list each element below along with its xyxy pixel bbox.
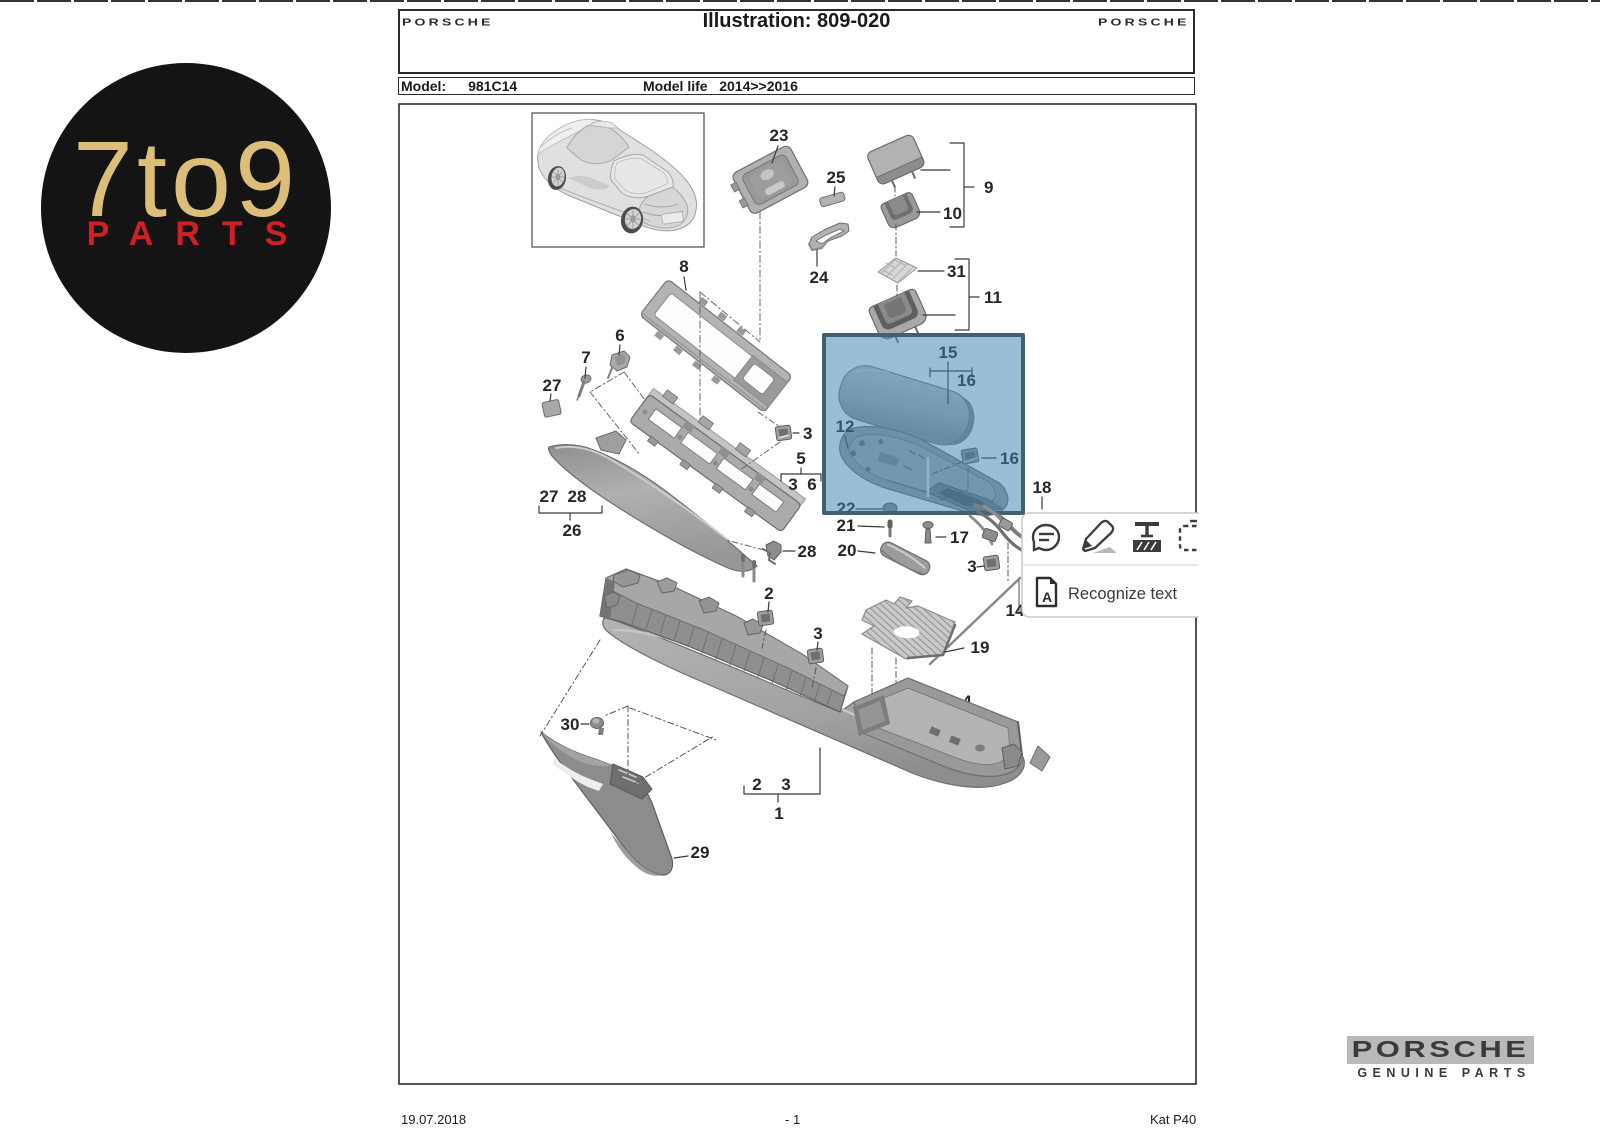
- svg-text:17: 17: [950, 528, 969, 547]
- svg-text:3: 3: [803, 424, 812, 443]
- svg-text:21: 21: [837, 516, 856, 535]
- svg-text:10: 10: [943, 204, 962, 223]
- svg-text:Recognize text: Recognize text: [1068, 585, 1178, 603]
- svg-text:2: 2: [752, 775, 761, 794]
- svg-text:3: 3: [781, 775, 790, 794]
- svg-text:29: 29: [691, 843, 710, 862]
- svg-text:9: 9: [984, 178, 993, 197]
- svg-text:6: 6: [807, 475, 816, 494]
- svg-text:1: 1: [774, 804, 783, 823]
- svg-text:2: 2: [764, 584, 773, 603]
- svg-text:28: 28: [798, 542, 817, 561]
- svg-text:26: 26: [563, 521, 582, 540]
- svg-text:28: 28: [568, 487, 587, 506]
- svg-text:30: 30: [561, 715, 580, 734]
- svg-text:20: 20: [838, 541, 857, 560]
- svg-text:24: 24: [810, 268, 829, 287]
- svg-text:A: A: [1042, 589, 1052, 605]
- svg-text:19: 19: [971, 638, 990, 657]
- svg-text:8: 8: [679, 257, 688, 276]
- svg-text:6: 6: [615, 326, 624, 345]
- svg-text:31: 31: [947, 262, 966, 281]
- svg-text:11: 11: [984, 288, 1002, 307]
- svg-text:7: 7: [581, 348, 590, 367]
- svg-text:25: 25: [827, 168, 846, 187]
- svg-text:3: 3: [788, 475, 797, 494]
- svg-text:3: 3: [813, 624, 822, 643]
- svg-text:5: 5: [796, 449, 805, 468]
- svg-text:23: 23: [770, 126, 789, 145]
- svg-text:3: 3: [967, 557, 976, 576]
- svg-text:18: 18: [1033, 478, 1052, 497]
- svg-text:27: 27: [543, 376, 562, 395]
- svg-text:27: 27: [540, 487, 559, 506]
